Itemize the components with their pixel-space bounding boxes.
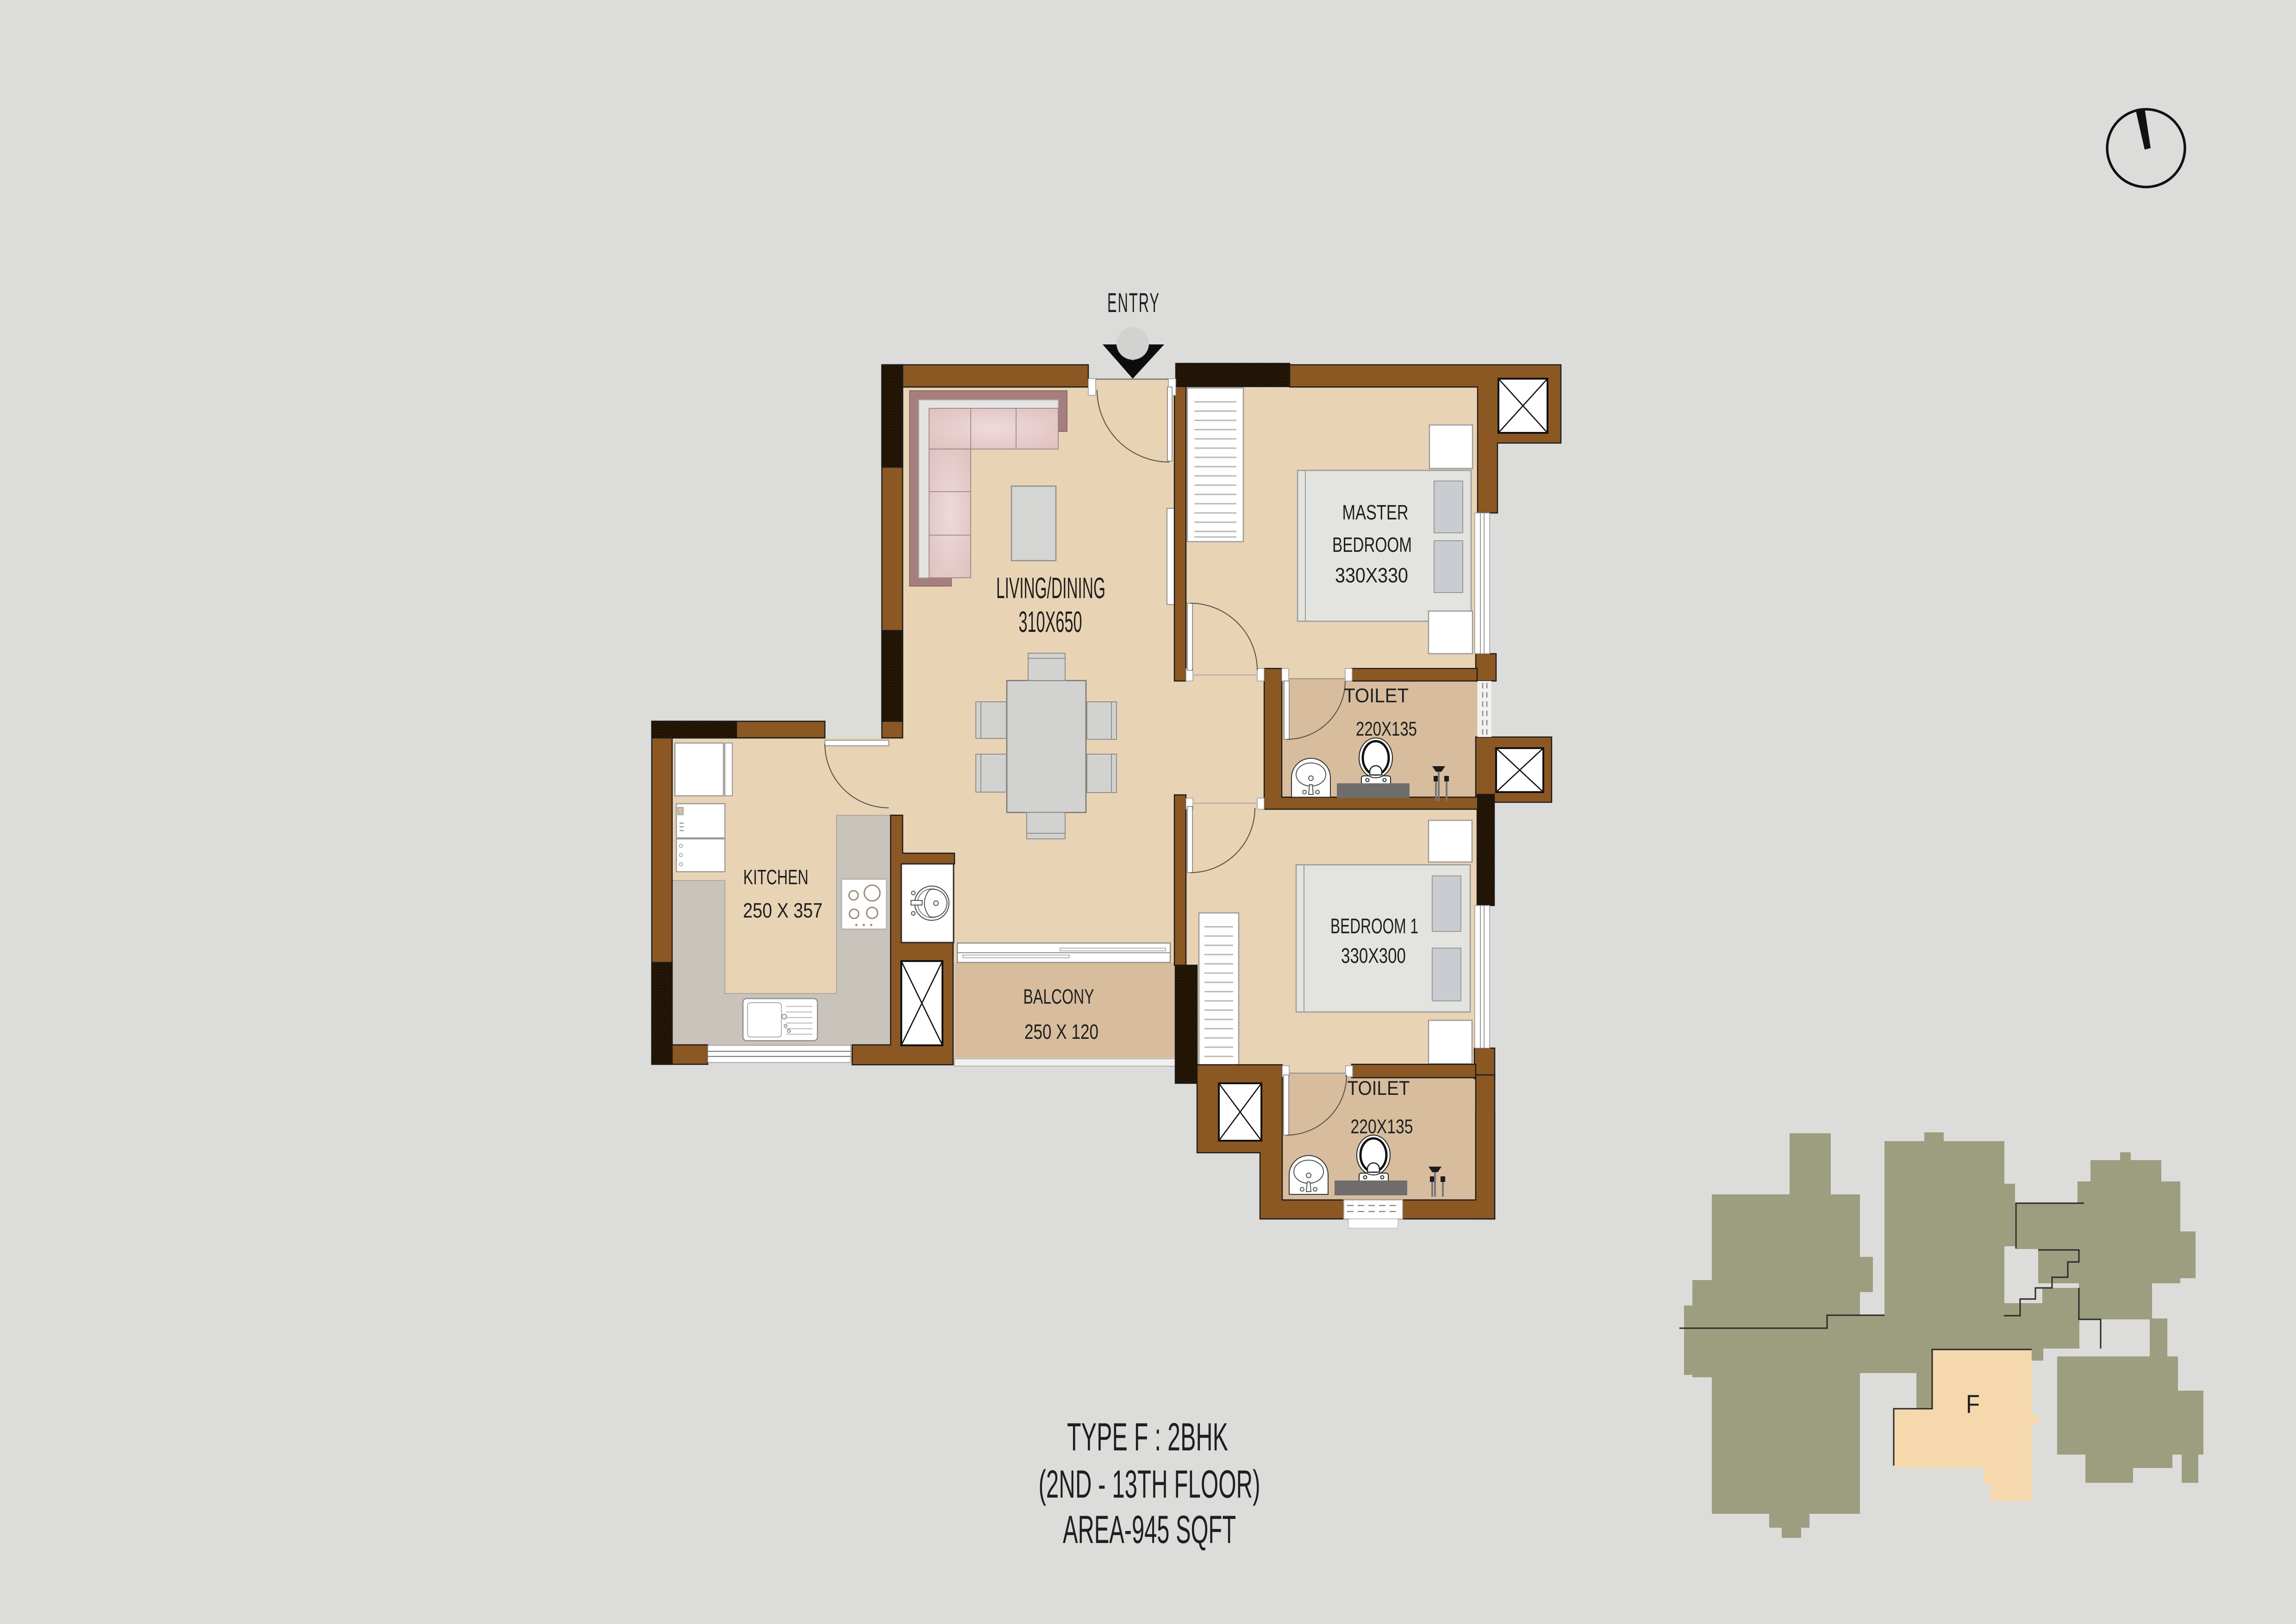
svg-text:330X300: 330X300: [1341, 943, 1406, 968]
svg-text:220X135: 220X135: [1351, 1116, 1413, 1138]
svg-text:250 X 357: 250 X 357: [743, 899, 823, 922]
svg-text:KITCHEN: KITCHEN: [743, 865, 809, 889]
svg-text:330X330: 330X330: [1335, 563, 1408, 587]
svg-text:310X650: 310X650: [1019, 605, 1082, 638]
svg-text:220X135: 220X135: [1356, 718, 1417, 740]
svg-text:ENTRY: ENTRY: [1107, 287, 1160, 318]
svg-text:BEDROOM: BEDROOM: [1332, 533, 1412, 556]
svg-text:(2ND - 13TH FLOOR): (2ND - 13TH FLOOR): [1039, 1462, 1260, 1506]
svg-text:BEDROOM 1: BEDROOM 1: [1330, 914, 1418, 938]
svg-text:TOILET: TOILET: [1348, 1077, 1410, 1099]
svg-text:MASTER: MASTER: [1342, 500, 1409, 524]
svg-text:TOILET: TOILET: [1344, 685, 1409, 707]
svg-text:LIVING/DINING: LIVING/DINING: [996, 571, 1105, 605]
svg-text:250 X 120: 250 X 120: [1024, 1020, 1098, 1043]
svg-text:F: F: [1966, 1389, 1980, 1418]
svg-text:TYPE F : 2BHK: TYPE F : 2BHK: [1067, 1415, 1228, 1459]
svg-text:AREA-945 SQFT: AREA-945 SQFT: [1063, 1508, 1236, 1552]
svg-text:BALCONY: BALCONY: [1023, 985, 1094, 1008]
